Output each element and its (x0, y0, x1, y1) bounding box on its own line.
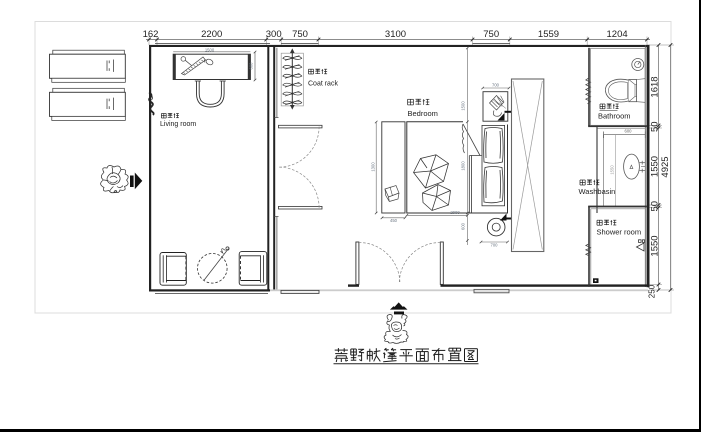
svg-text:1800: 1800 (461, 161, 466, 171)
svg-text:300: 300 (266, 29, 282, 40)
svg-text:1500: 1500 (205, 48, 215, 53)
svg-text:750: 750 (483, 29, 499, 40)
svg-text:Bathroom: Bathroom (598, 112, 631, 121)
svg-text:1550: 1550 (649, 156, 660, 177)
svg-text:Coat rack: Coat rack (308, 81, 338, 88)
svg-text:Shower room: Shower room (597, 228, 642, 237)
svg-text:1550: 1550 (610, 165, 615, 175)
svg-text:50: 50 (649, 201, 660, 212)
svg-text:1550: 1550 (649, 235, 660, 256)
svg-text:Washbasin: Washbasin (579, 187, 616, 196)
svg-text:600: 600 (461, 222, 466, 230)
svg-text:4925: 4925 (660, 156, 671, 177)
svg-text:Living room: Living room (160, 121, 196, 128)
svg-text:1500: 1500 (461, 101, 466, 111)
svg-text:1300: 1300 (371, 162, 376, 172)
svg-text:700: 700 (491, 243, 499, 248)
svg-text:162: 162 (143, 29, 159, 40)
svg-text:3100: 3100 (385, 29, 406, 40)
svg-text:2000: 2000 (450, 210, 460, 215)
svg-text:Bedroom: Bedroom (408, 109, 438, 118)
svg-text:450: 450 (390, 218, 398, 223)
svg-text:1559: 1559 (538, 29, 559, 40)
svg-text:50: 50 (649, 121, 660, 132)
svg-text:600: 600 (249, 62, 254, 70)
svg-text:750: 750 (292, 29, 308, 40)
svg-text:1204: 1204 (607, 29, 628, 40)
svg-text:1618: 1618 (649, 76, 660, 97)
svg-text:2200: 2200 (201, 29, 222, 40)
svg-text:600: 600 (625, 128, 633, 133)
svg-text:700: 700 (492, 83, 500, 88)
